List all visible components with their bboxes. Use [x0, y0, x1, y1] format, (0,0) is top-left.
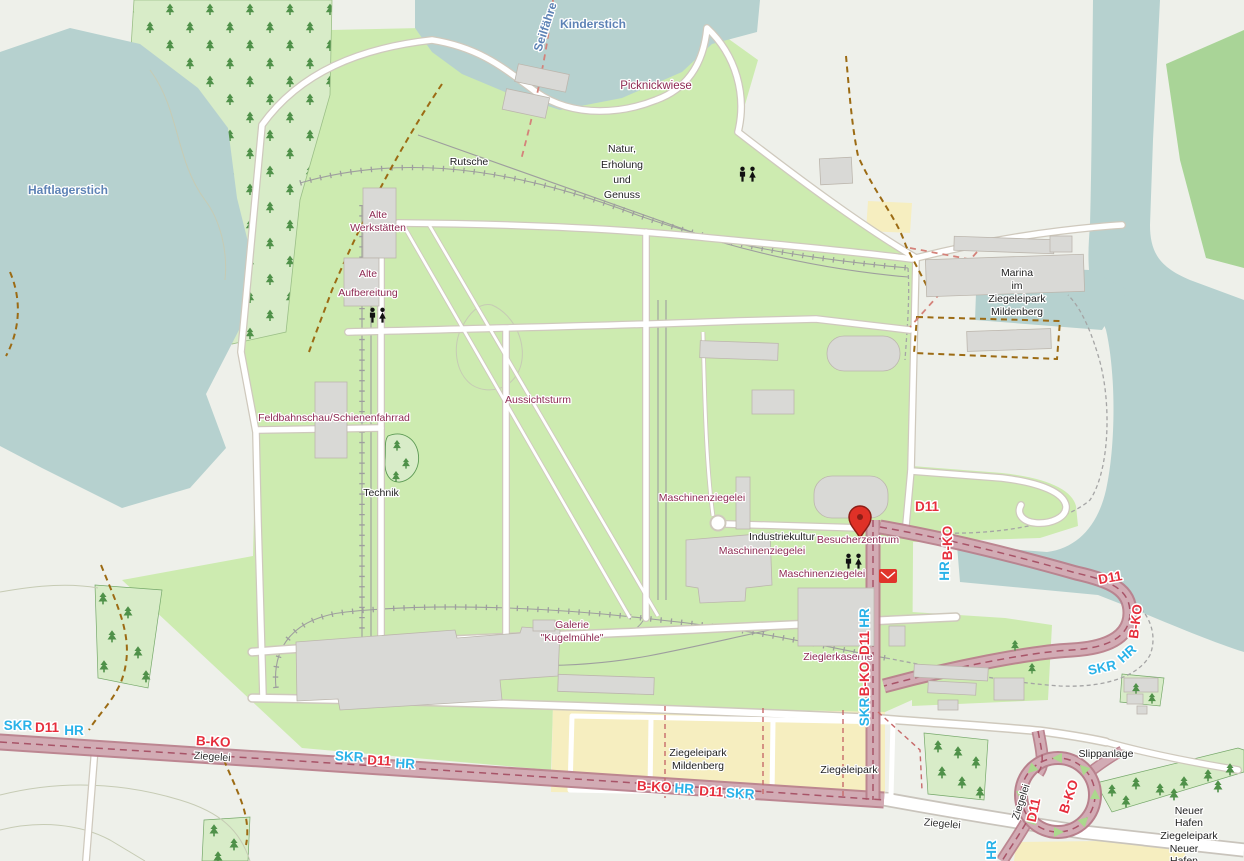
label-neuer-hafen-zp-3: Ziegeleipark: [1160, 830, 1218, 842]
route-hr-stack: HR: [857, 608, 872, 628]
label-ziegeleipark-mildenberg-1: Ziegeleipark: [669, 747, 727, 759]
label-neuer-hafen-2: Hafen: [1170, 855, 1198, 861]
route-bko-center: B-KO: [637, 778, 672, 795]
route-d11-west: D11: [35, 720, 60, 735]
label-galerie-2: "Kugelmühle": [541, 632, 604, 644]
label-marina-2: im: [1011, 280, 1022, 292]
route-skr-farright: SKR: [1087, 657, 1118, 678]
label-haftlagerstich: Haftlagerstich: [28, 183, 108, 197]
route-d11-center: D11: [699, 783, 724, 799]
route-d11-stack: D11: [857, 631, 872, 656]
wood-northeast: [1166, 30, 1244, 268]
label-alte-werkstaetten-1: Alte: [369, 209, 387, 221]
label-kinderstich: Kinderstich: [560, 17, 626, 31]
label-natur-1: Natur,: [608, 143, 636, 155]
street-ziegelei-west: Ziegelei: [193, 750, 231, 765]
label-slippanlage: Slippanlage: [1079, 748, 1134, 760]
route-skr-center: SKR: [726, 785, 755, 801]
label-aussichtsturm: Aussichtsturm: [505, 394, 571, 406]
label-ziegeleipark-mildenberg-2: Mildenberg: [672, 760, 724, 772]
route-skr-west: SKR: [4, 718, 33, 733]
label-alte-werkstaetten-2: Werkstätten: [350, 222, 406, 234]
route-skr-stack: SKR: [857, 698, 872, 727]
label-marina-3: Ziegeleipark: [988, 293, 1046, 305]
label-technik: Technik: [363, 487, 399, 499]
postbox-icon: [879, 569, 897, 583]
label-maschinenziegelei-mid: Maschinenziegelei: [719, 545, 805, 557]
route-bko-roundabout: B-KO: [1056, 778, 1081, 815]
route-hr-west: HR: [64, 723, 84, 738]
label-maschinenziegelei-nw: Maschinenziegelei: [659, 492, 745, 504]
route-bko-rightmid: B-KO: [940, 526, 955, 561]
route-d11-rightmid: D11: [915, 499, 940, 514]
label-marina-4: Mildenberg: [991, 306, 1043, 318]
route-hr-south: HR: [984, 840, 999, 860]
map-canvas[interactable]: Seilfähre Kinderstich Haftlagerstich Pic…: [0, 0, 1244, 861]
label-natur-3: und: [613, 174, 631, 186]
route-hr-center: HR: [674, 781, 695, 797]
label-alte-aufbereitung-2: Aufbereitung: [338, 287, 398, 299]
route-skr-midwest: SKR: [335, 748, 364, 764]
route-bko-west: B-KO: [196, 733, 231, 750]
route-bko-stack: B-KO: [857, 662, 872, 697]
route-d11-midwest: D11: [367, 752, 392, 768]
label-maschinenziegelei-se: Maschinenziegelei: [779, 568, 865, 580]
label-galerie-1: Galerie: [555, 619, 589, 631]
label-natur-2: Erholung: [601, 159, 643, 171]
route-hr-rightmid: HR: [937, 561, 952, 581]
label-neuer-hafen-zp-1: Neuer: [1175, 805, 1204, 817]
label-ziegeleipark: Ziegeleipark: [820, 764, 878, 776]
street-ziegelei-east: Ziegelei: [923, 816, 961, 831]
label-neuer-hafen-1: Neuer: [1170, 843, 1199, 855]
label-marina-1: Marina: [1001, 267, 1033, 279]
label-natur-4: Genuss: [604, 189, 640, 201]
label-neuer-hafen-zp-2: Hafen: [1175, 817, 1203, 829]
label-feldbahnschau: Feldbahnschau/Schienenfahrrad: [258, 412, 410, 424]
label-besucherzentrum: Besucherzentrum: [817, 534, 900, 546]
label-alte-aufbereitung-1: Alte: [359, 268, 377, 280]
route-hr-midwest: HR: [395, 756, 416, 772]
label-industriekultur: Industriekultur: [749, 531, 815, 543]
label-picknickwiese: Picknickwiese: [620, 80, 692, 92]
route-bko-farright: B-KO: [1126, 603, 1145, 639]
label-rutsche: Rutsche: [450, 156, 489, 168]
mini-roundabout: [711, 516, 726, 531]
